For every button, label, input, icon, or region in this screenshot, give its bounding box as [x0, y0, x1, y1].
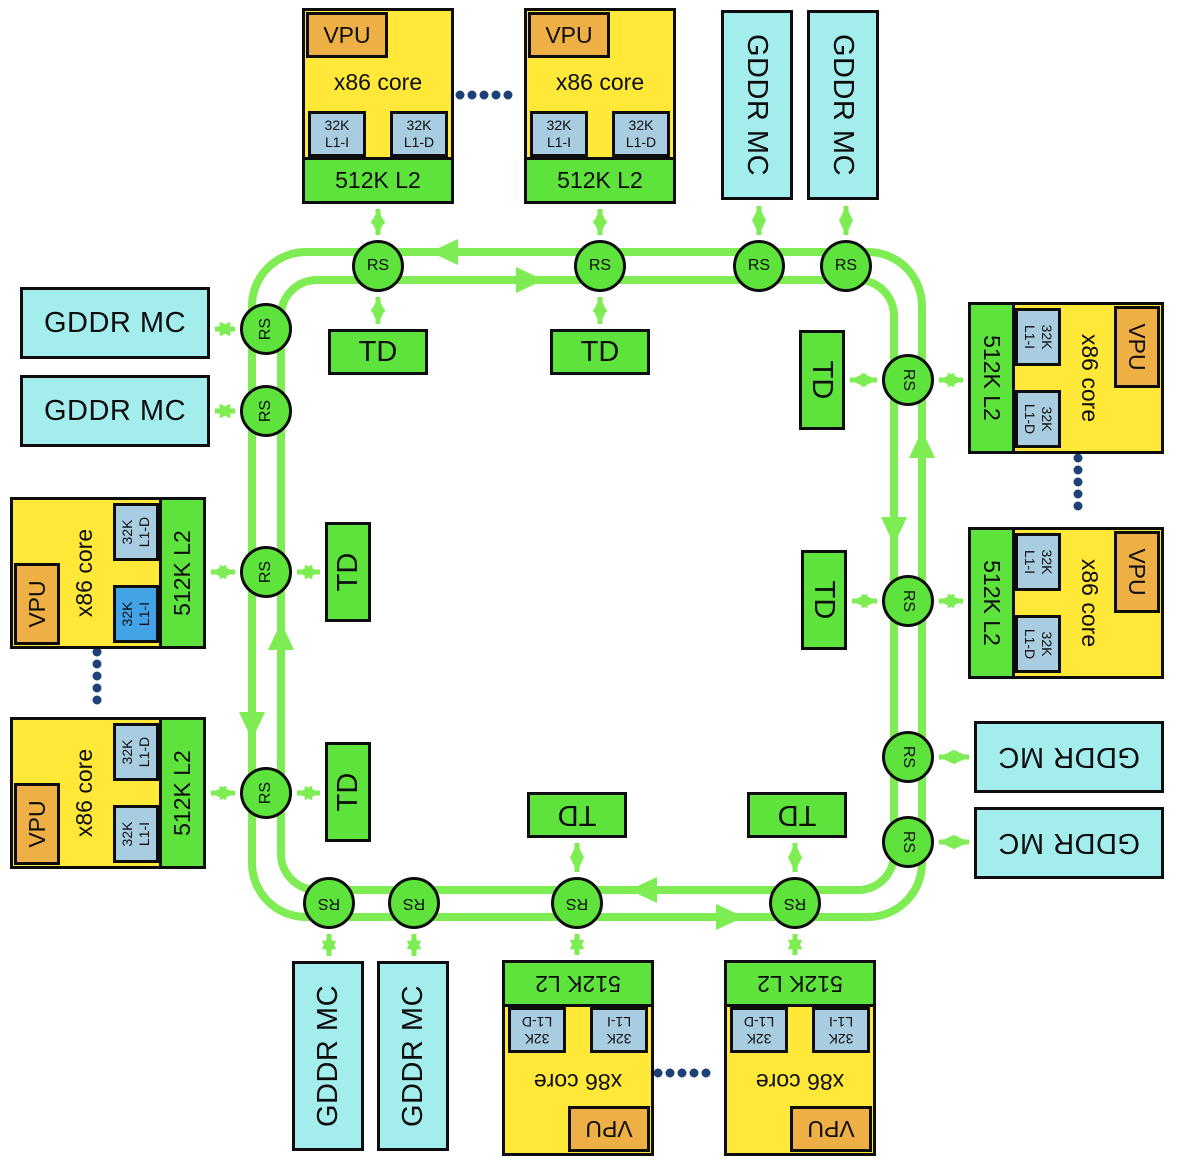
l1i-size: 32K: [1038, 550, 1055, 575]
arrow-left-icon: [430, 239, 458, 265]
arrow-down-icon: [881, 517, 907, 545]
tag-directory-right-2: TD: [801, 550, 847, 650]
core-tile-left-2: VPU x86 core 32KL1-I 32KL1-D 512K L2: [10, 717, 206, 869]
ring-stop-left-3: RS: [240, 546, 292, 598]
l1d-name: L1-D: [626, 134, 656, 151]
l1i-size: 32K: [547, 117, 572, 134]
gddr-mc-bottom-1: GDDR MC: [292, 961, 364, 1151]
arrow-right-icon: [716, 904, 744, 930]
ring-stop-left-1: RS: [240, 303, 292, 355]
ring-stop-right-2: RS: [882, 575, 934, 627]
l1i-cache: 32KL1-I: [113, 805, 159, 863]
l2-cache: 512K L2: [505, 963, 651, 1007]
l1d-size: 32K: [1038, 632, 1055, 657]
ring-interconnect-diagram: VPU x86 core 32KL1-I 32KL1-D 512K L2 VPU…: [0, 0, 1180, 1172]
vpu-block: VPU: [14, 783, 60, 865]
l1d-cache: 32KL1-D: [612, 111, 670, 157]
l1d-cache: 32KL1-D: [390, 111, 448, 157]
x86-core-label: x86 core: [527, 69, 673, 96]
l2-cache: 512K L2: [305, 157, 451, 201]
l1i-size: 32K: [607, 1030, 632, 1047]
gddr-mc-right-1: GDDR MC: [974, 721, 1164, 793]
ring-stop-bottom-2: RS: [388, 877, 440, 929]
ring-stop-left-4: RS: [240, 767, 292, 819]
ring-stop-top-1: RS: [352, 240, 404, 292]
gddr-mc-left-2: GDDR MC: [20, 375, 210, 447]
gddr-mc-bottom-2: GDDR MC: [377, 961, 449, 1151]
l1d-name: L1-D: [404, 134, 434, 151]
vpu-block: VPU: [14, 563, 60, 645]
ring-stop-left-2: RS: [240, 385, 292, 437]
core-tile-right-2: VPU x86 core 32KL1-I 32KL1-D 512K L2: [968, 527, 1164, 679]
l1i-size: 32K: [1038, 325, 1055, 350]
arrow-right-icon: [516, 267, 544, 293]
l1i-name: L1-I: [1021, 550, 1038, 574]
x86-core-label: x86 core: [71, 720, 98, 866]
l1i-size: 32K: [119, 822, 136, 847]
ring-stop-bottom-1: RS: [303, 877, 355, 929]
l1i-cache: 32KL1-I: [590, 1007, 648, 1053]
core-tile-top-1: VPU x86 core 32KL1-I 32KL1-D 512K L2: [302, 8, 454, 204]
l1d-size: 32K: [119, 520, 136, 545]
l2-cache: 512K L2: [527, 157, 673, 201]
l1d-size: 32K: [747, 1030, 772, 1047]
ring-stop-right-3: RS: [882, 731, 934, 783]
ring-stop-top-2: RS: [574, 240, 626, 292]
vpu-block: VPU: [568, 1106, 650, 1152]
l1d-name: L1-D: [522, 1013, 552, 1030]
l1i-name: L1-I: [829, 1013, 853, 1030]
tag-directory-left-2: TD: [325, 742, 371, 842]
l1d-size: 32K: [629, 117, 654, 134]
l2-cache: 512K L2: [727, 963, 873, 1007]
vpu-block: VPU: [1114, 306, 1160, 388]
l1i-size: 32K: [119, 602, 136, 627]
l1d-cache: 32KL1-D: [1015, 390, 1061, 448]
x86-core-label: x86 core: [1076, 305, 1103, 451]
x86-core-label: x86 core: [1076, 530, 1103, 676]
ring-stop-right-4: RS: [882, 816, 934, 868]
x86-core-label: x86 core: [305, 69, 451, 96]
gddr-mc-left-1: GDDR MC: [20, 287, 210, 359]
x86-core-label: x86 core: [727, 1068, 873, 1095]
l1d-cache: 32KL1-D: [508, 1007, 566, 1053]
core-tile-bottom-2: VPU x86 core 32KL1-I 32KL1-D 512K L2: [724, 960, 876, 1156]
l1d-name: L1-D: [136, 737, 153, 767]
x86-core-label: x86 core: [71, 500, 98, 646]
vpu-block: VPU: [1114, 531, 1160, 613]
l2-cache: 512K L2: [971, 305, 1015, 451]
arrow-up-icon: [268, 622, 294, 650]
l2-cache: 512K L2: [159, 720, 203, 866]
l1i-cache: 32KL1-I: [812, 1007, 870, 1053]
l1i-name: L1-I: [1021, 325, 1038, 349]
ring-stop-top-4: RS: [820, 240, 872, 292]
l1d-cache: 32KL1-D: [1015, 615, 1061, 673]
tag-directory-top-2: TD: [550, 329, 650, 375]
vpu-block: VPU: [528, 12, 610, 58]
l1d-size: 32K: [1038, 407, 1055, 432]
l1i-name: L1-I: [607, 1013, 631, 1030]
l1d-name: L1-D: [136, 517, 153, 547]
tag-directory-bottom-1: TD: [527, 792, 627, 838]
l1d-size: 32K: [407, 117, 432, 134]
ring-stop-top-3: RS: [733, 240, 785, 292]
l1i-cache: 32KL1-I: [530, 111, 588, 157]
l1i-cache: 32KL1-I: [1015, 308, 1061, 366]
tag-directory-right-1: TD: [799, 330, 845, 430]
l1d-cache: 32KL1-D: [113, 723, 159, 781]
arrow-left-icon: [629, 877, 657, 903]
l1i-name: L1-I: [325, 134, 349, 151]
core-tile-right-1: VPU x86 core 32KL1-I 32KL1-D 512K L2: [968, 302, 1164, 454]
gddr-mc-top-2: GDDR MC: [807, 10, 879, 200]
l1d-name: L1-D: [1021, 629, 1038, 659]
l1i-name: L1-I: [136, 602, 153, 626]
l1i-cache: 32KL1-I: [1015, 533, 1061, 591]
x86-core-label: x86 core: [505, 1068, 651, 1095]
core-tile-left-1: VPU x86 core 32KL1-I 32KL1-D 512K L2: [10, 497, 206, 649]
gddr-mc-top-1: GDDR MC: [721, 10, 793, 200]
ring-stop-right-1: RS: [882, 354, 934, 406]
l1d-size: 32K: [119, 740, 136, 765]
gddr-mc-right-2: GDDR MC: [974, 807, 1164, 879]
l1i-size: 32K: [325, 117, 350, 134]
tag-directory-top-1: TD: [328, 329, 428, 375]
tag-directory-left-1: TD: [325, 522, 371, 622]
vpu-block: VPU: [790, 1106, 872, 1152]
l1i-name: L1-I: [547, 134, 571, 151]
core-tile-bottom-1: VPU x86 core 32KL1-I 32KL1-D 512K L2: [502, 960, 654, 1156]
l1d-cache: 32KL1-D: [730, 1007, 788, 1053]
ring-stop-bottom-4: RS: [769, 877, 821, 929]
l1i-size: 32K: [829, 1030, 854, 1047]
l1i-cache-highlighted: 32KL1-I: [113, 585, 159, 643]
l2-cache: 512K L2: [159, 500, 203, 646]
vpu-block: VPU: [306, 12, 388, 58]
tag-directory-bottom-2: TD: [747, 792, 847, 838]
l1d-name: L1-D: [1021, 404, 1038, 434]
arrow-down-icon: [239, 712, 265, 740]
arrow-up-icon: [909, 430, 935, 458]
l2-cache: 512K L2: [971, 530, 1015, 676]
ring-stop-bottom-3: RS: [551, 877, 603, 929]
l1d-cache: 32KL1-D: [113, 503, 159, 561]
l1d-size: 32K: [525, 1030, 550, 1047]
l1i-name: L1-I: [136, 822, 153, 846]
core-tile-top-2: VPU x86 core 32KL1-I 32KL1-D 512K L2: [524, 8, 676, 204]
l1i-cache: 32KL1-I: [308, 111, 366, 157]
l1d-name: L1-D: [744, 1013, 774, 1030]
